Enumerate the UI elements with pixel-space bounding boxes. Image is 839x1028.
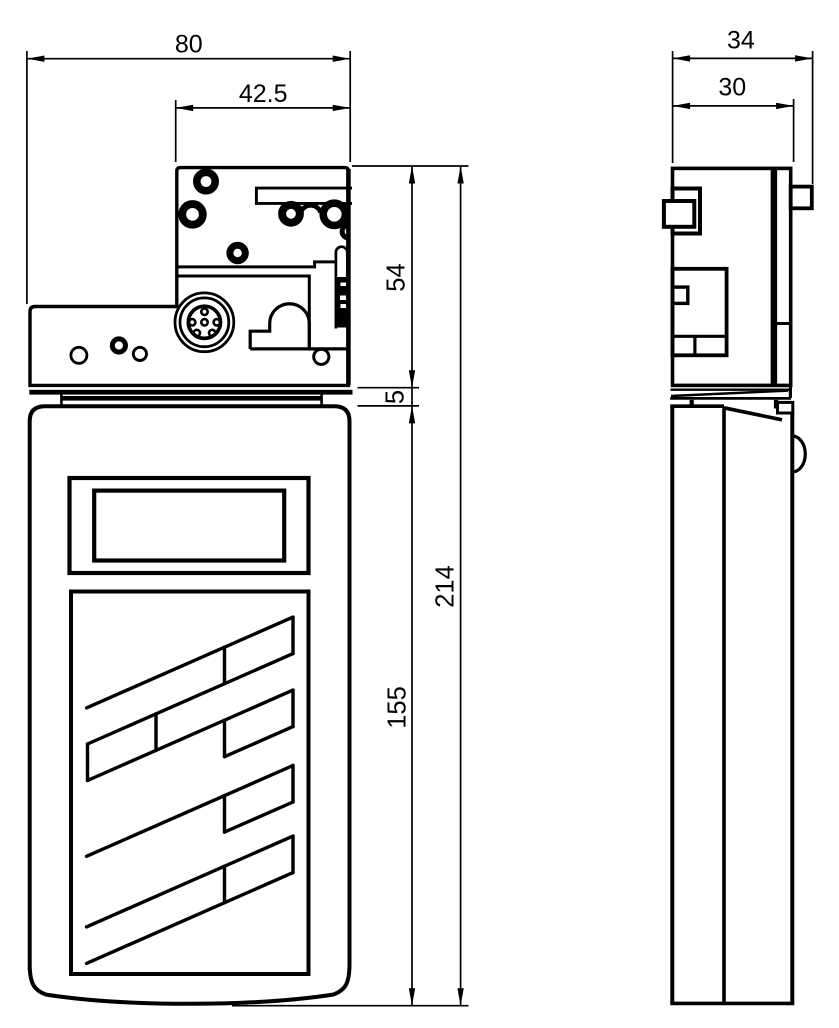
svg-text:42.5: 42.5 [239,80,288,108]
svg-text:34: 34 [727,27,755,55]
svg-text:155: 155 [383,686,411,729]
svg-text:30: 30 [718,74,746,102]
svg-text:5: 5 [382,390,410,404]
svg-text:80: 80 [175,30,203,58]
svg-text:54: 54 [383,263,411,291]
svg-text:214: 214 [431,565,459,608]
